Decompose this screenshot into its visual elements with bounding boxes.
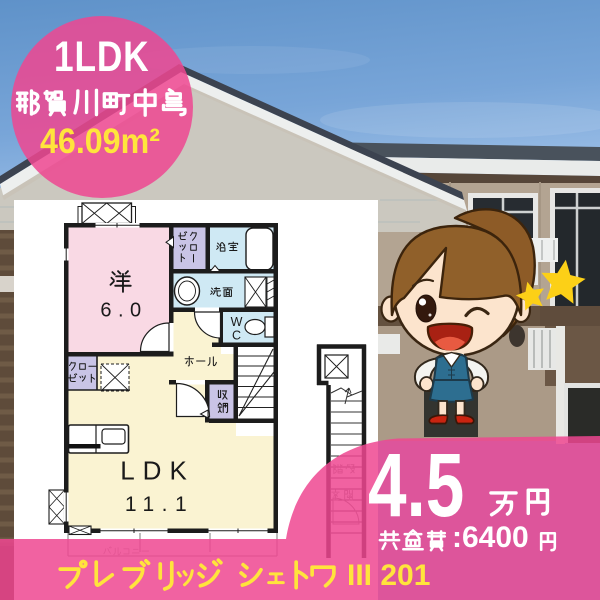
- svg-text:III 201: III 201: [347, 559, 430, 592]
